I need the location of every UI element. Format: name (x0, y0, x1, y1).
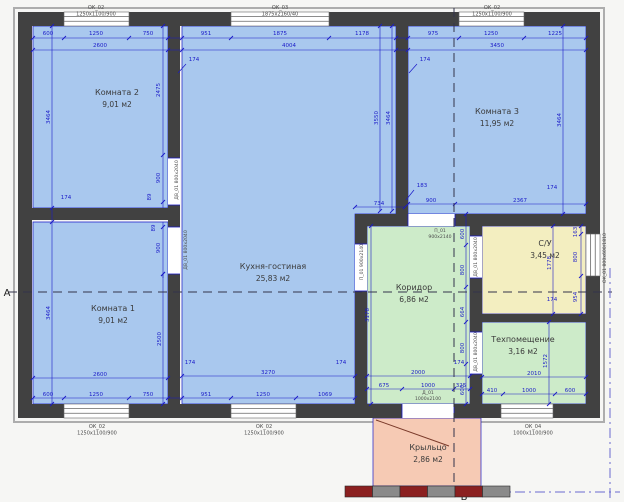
door-label: ОК_01 800х600/1810 (602, 233, 608, 283)
door-opening (168, 227, 180, 274)
dim-text: 2600 (93, 43, 107, 49)
annotation-text: 174 (420, 57, 431, 63)
room-krylco (373, 418, 481, 486)
window-label: 1875х2160/40 (262, 12, 298, 18)
porch-steps-segment (400, 486, 428, 497)
dim-text: 1250 (89, 31, 103, 37)
window-label: ОК_02 (256, 424, 272, 430)
dim-text: 750 (143, 392, 154, 398)
room-area-komnata-3: 11,95 м2 (480, 119, 515, 128)
dim-text: 3270 (261, 370, 275, 376)
dim-text: 900 (156, 242, 162, 253)
wall-segment (26, 208, 180, 220)
room-name-koridor: Коридор (396, 283, 432, 292)
dim-text: 600 (565, 388, 576, 394)
dim-text: 1225 (548, 31, 562, 37)
dim-text: 734 (374, 201, 385, 207)
annotation-text: 174 (454, 360, 465, 366)
dim-text: 600 (460, 228, 466, 239)
room-name-komnata-2: Комната 2 (95, 88, 139, 97)
annotation-text: 174 (336, 360, 347, 366)
porch-steps-segment (428, 486, 456, 497)
room-name-su: С/У (538, 239, 551, 248)
door-label: Д_01 (422, 390, 434, 396)
window-label: 1250х1100/900 (472, 12, 512, 18)
door-label: 1000х2100 (415, 396, 441, 402)
dim-text: 954 (573, 291, 579, 302)
door-label: ДВ_01 800х2040 (473, 237, 479, 277)
window-label: 1250х1100/900 (76, 12, 116, 18)
dim-text: 900 (156, 172, 162, 183)
dim-text: 3464 (386, 111, 392, 125)
wall-segment (586, 12, 600, 418)
room-name-tehpomeshchenie: Техпомещение (490, 335, 555, 344)
dim-text: 1178 (355, 31, 369, 37)
dim-text: 4004 (282, 43, 296, 49)
window-label: 1000х1100/900 (513, 431, 553, 437)
annotation-text: 174 (185, 360, 196, 366)
room-area-komnata-2: 9,01 м2 (102, 100, 132, 109)
door-label: П_01 (434, 228, 446, 234)
room-name-kuhnya-gostinaya: Кухня-гостиная (240, 262, 307, 271)
annotation-text: 174 (547, 185, 558, 191)
dim-text: 2000 (411, 370, 425, 376)
dim-text: 2600 (93, 372, 107, 378)
dim-text: 89 (147, 193, 153, 200)
dim-text: 750 (143, 31, 154, 37)
window-label: ОК_02 (484, 5, 500, 11)
wall-segment (396, 26, 408, 214)
dim-text: 600 (43, 31, 54, 37)
window-label: ОК_04 (525, 424, 541, 430)
annotation-text: 183 (417, 183, 428, 189)
floor-plan-canvas: 6001250750951187511789751250122526004004… (0, 0, 624, 502)
dim-text: 600 (43, 392, 54, 398)
dim-text: 3450 (490, 43, 504, 49)
dim-text: 1250 (256, 392, 270, 398)
dim-text: 951 (201, 392, 212, 398)
dim-text: 900 (426, 198, 437, 204)
room-komnata-2 (33, 26, 168, 208)
axis-letter-a: А (4, 288, 11, 299)
room-su (482, 226, 586, 314)
dim-text: 3464 (46, 306, 52, 320)
dim-text: 2367 (513, 198, 527, 204)
window-opening (501, 404, 553, 418)
annotation-text: 174 (547, 297, 558, 303)
room-area-kuhnya-gostinaya: 25,83 м2 (256, 274, 291, 283)
dim-text: 410 (487, 388, 498, 394)
dim-text: 951 (201, 31, 212, 37)
window-opening (64, 404, 129, 418)
window-label: 1250х1100/900 (77, 431, 117, 437)
room-area-koridor: 6,86 м2 (399, 295, 429, 304)
dim-text: 800 (460, 342, 466, 353)
dim-text: 664 (460, 306, 466, 317)
dim-text: 600 (460, 384, 466, 395)
annotation-text: 174 (61, 195, 72, 201)
door-opening (408, 214, 455, 226)
porch-steps-segment (373, 486, 401, 497)
door-label: ДВ_01 800х2040 (174, 160, 180, 200)
dim-text: 1250 (89, 392, 103, 398)
dim-text: 675 (379, 383, 390, 389)
dim-text: 2010 (527, 371, 541, 377)
door-label: 900х2140 (428, 234, 451, 240)
dim-text: 3550 (374, 111, 380, 125)
dim-text: 800 (573, 251, 579, 262)
dim-text: 800 (460, 264, 466, 275)
window-opening (586, 234, 600, 276)
dim-text: 1572 (543, 354, 549, 368)
window-label: ОК_02 (88, 5, 104, 11)
dim-text: 3464 (557, 113, 563, 127)
door-label: П_01 900х2140 (359, 244, 365, 280)
room-area-tehpomeshchenie: 3,16 м2 (508, 347, 538, 356)
porch-steps-segment (455, 486, 483, 497)
dim-text: 1875 (273, 31, 287, 37)
dim-text: 89 (151, 224, 157, 231)
door-label: ДВ_01 800х2040 (473, 332, 479, 372)
room-area-su: 3,45 м2 (530, 251, 560, 260)
room-name-krylco: Крыльцо (409, 443, 446, 452)
floor-plan-page: 6001250750951187511789751250122526004004… (0, 0, 624, 502)
dim-text: 1000 (421, 383, 435, 389)
dim-text: 975 (428, 31, 439, 37)
wall-segment (470, 314, 586, 322)
dim-text: 1000 (522, 388, 536, 394)
door-opening (402, 404, 454, 418)
annotation-text: 174 (189, 57, 200, 63)
door-label: ДВ_01 800х2040 (183, 230, 189, 270)
porch-steps-segment (345, 486, 373, 497)
window-opening (231, 404, 296, 418)
window-label: ОК_02 (89, 424, 105, 430)
room-area-komnata-1: 9,01 м2 (98, 316, 128, 325)
dim-text: 3178 (365, 308, 371, 322)
dim-text: 1069 (318, 392, 332, 398)
dim-text: 2500 (157, 332, 163, 346)
porch-steps-segment (483, 486, 511, 497)
window-label: ОК_03 (272, 5, 288, 11)
room-name-komnata-1: Комната 1 (91, 304, 135, 313)
dim-text: 163 (573, 226, 579, 237)
window-label: 1250х1100/900 (244, 431, 284, 437)
dim-text: 2475 (156, 83, 162, 97)
room-area-krylco: 2,86 м2 (413, 455, 443, 464)
dim-text: 1250 (484, 31, 498, 37)
room-koridor (367, 226, 470, 404)
room-name-komnata-3: Комната 3 (475, 107, 519, 116)
dim-text: 3464 (46, 110, 52, 124)
